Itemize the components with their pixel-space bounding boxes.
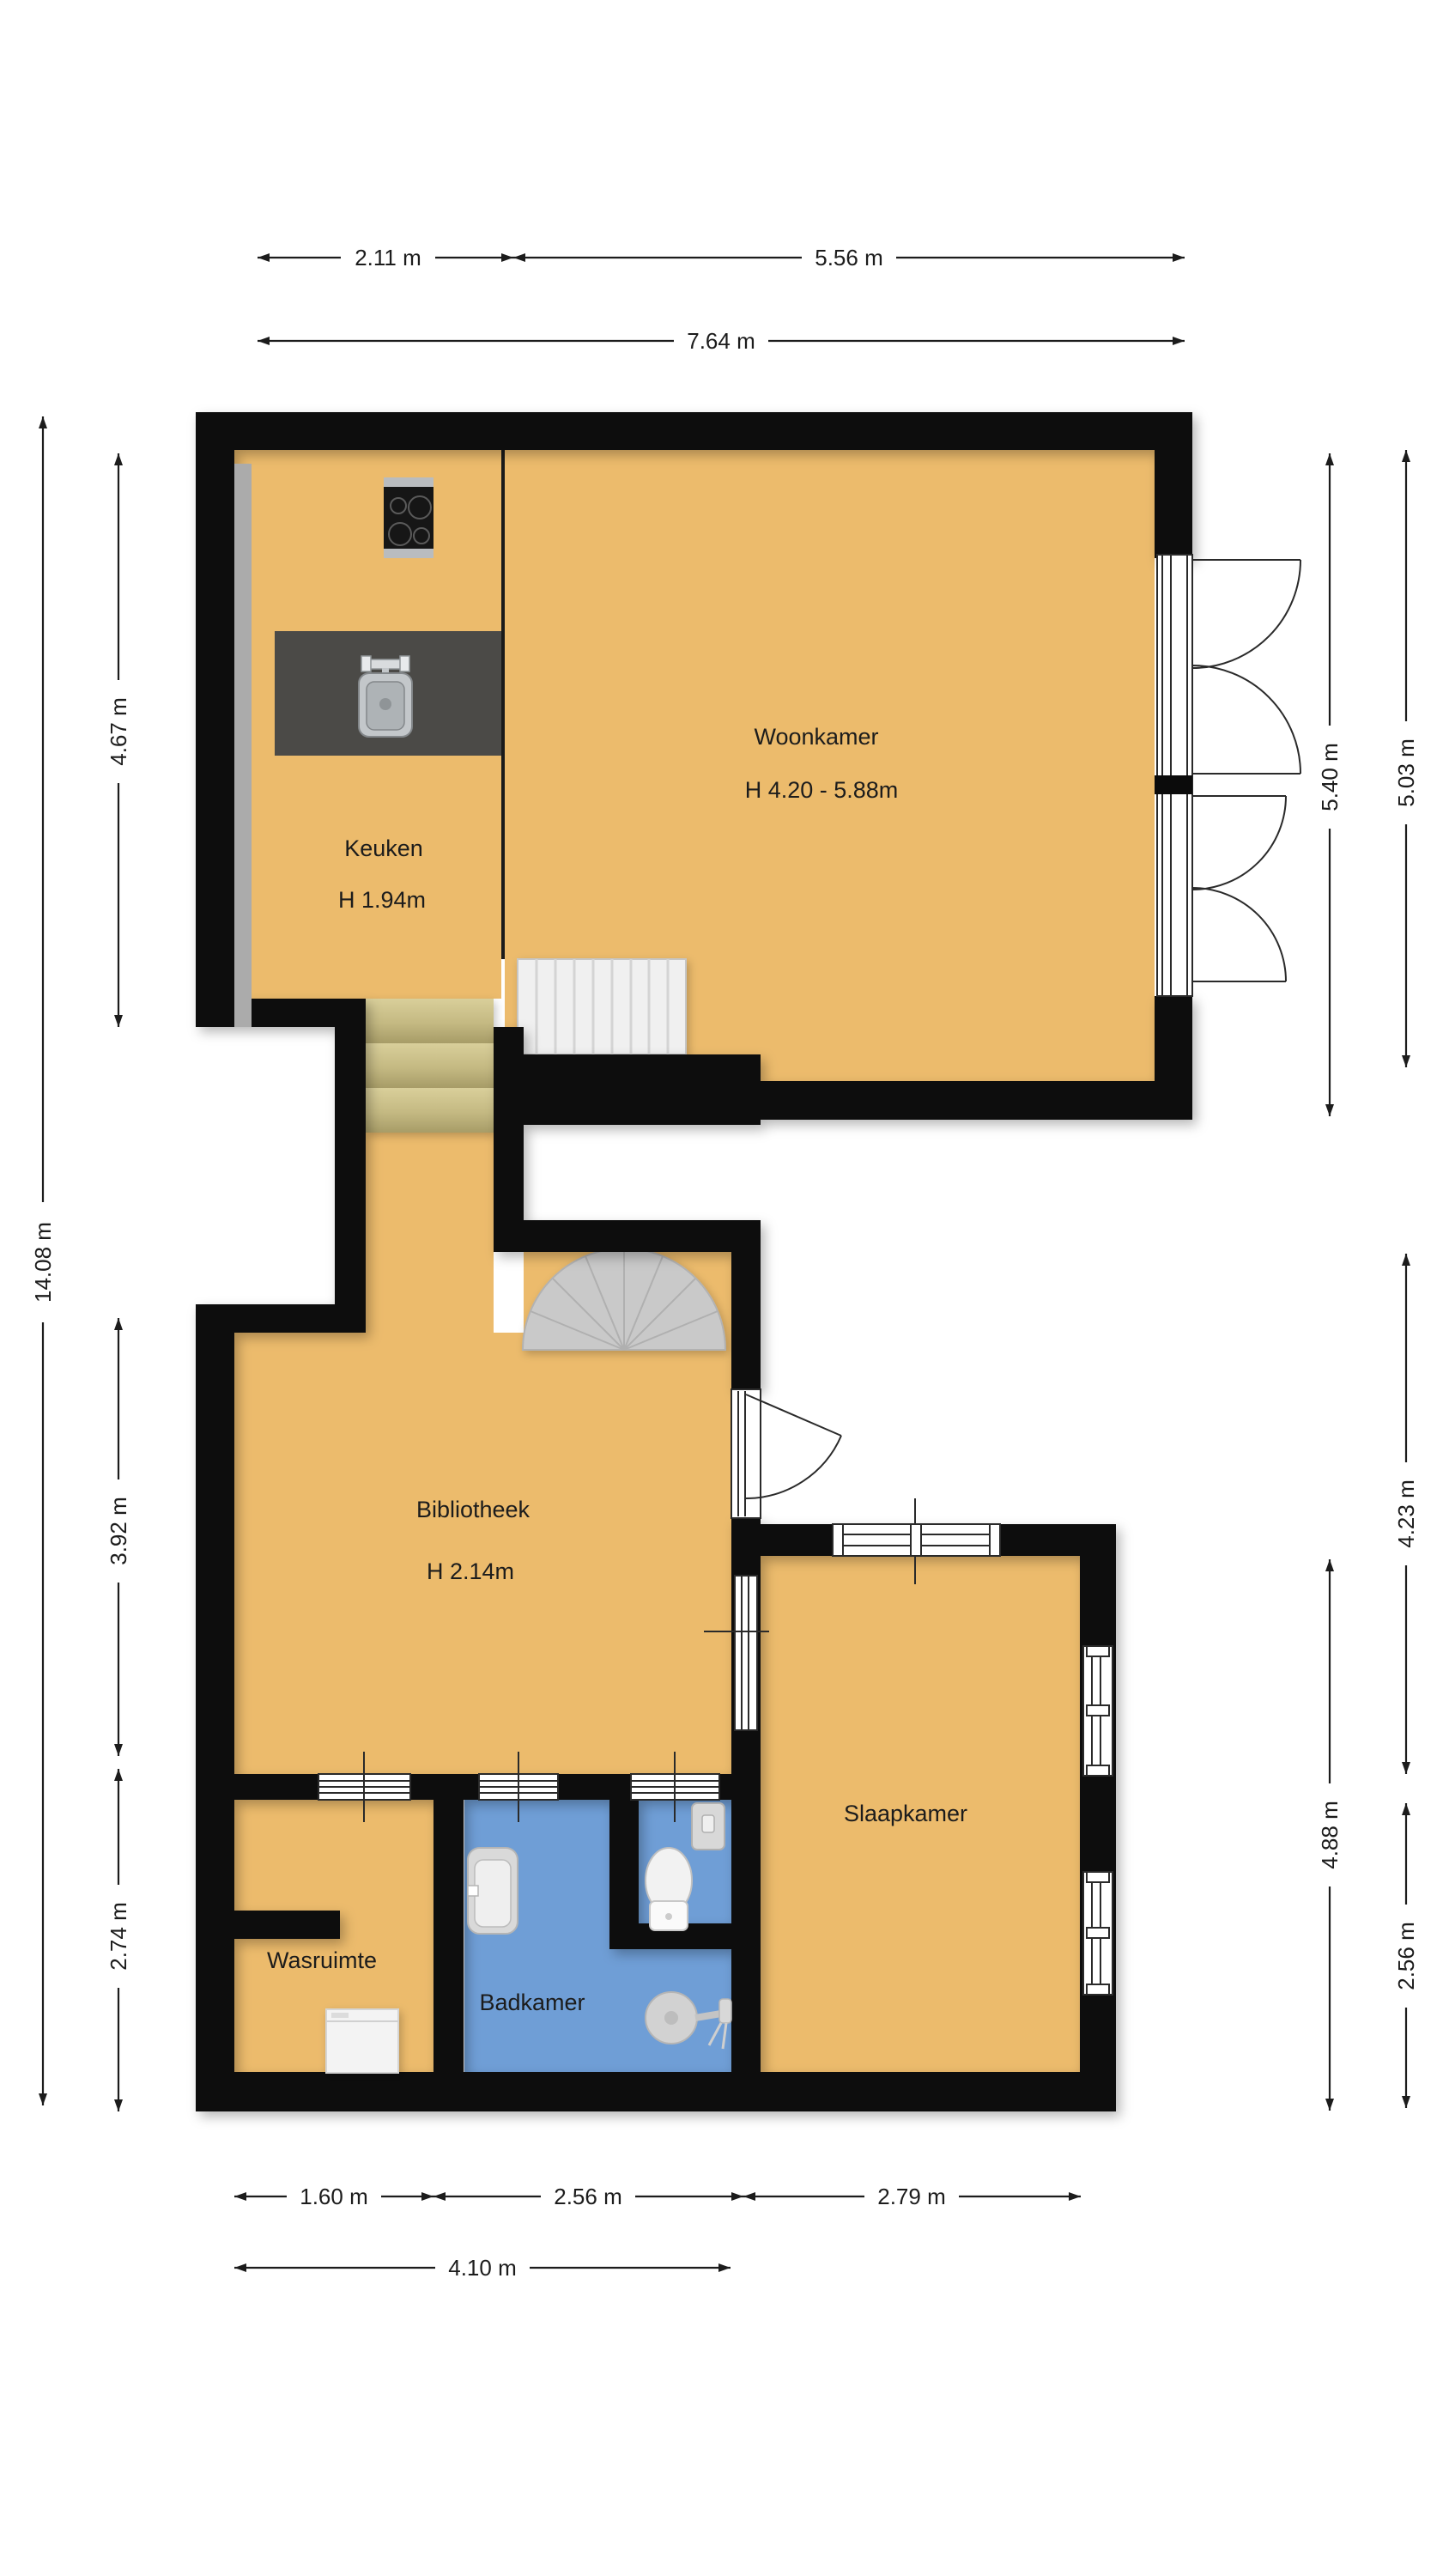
woonkamer-height-label: H 4.20 - 5.88m: [745, 777, 899, 803]
wood-steps: [366, 999, 494, 1133]
straight-stairs: [518, 959, 686, 1054]
dim-total-height: 14.08 m: [30, 1222, 56, 1303]
room-divider-line: [501, 450, 505, 959]
stove-icon: [384, 477, 433, 558]
kitchen-sink-icon: [359, 656, 412, 737]
bibliotheek-floor: [234, 1333, 731, 1774]
dim-woonkamer-height-outer: 5.03 m: [1393, 738, 1419, 807]
wasruimte-label: Wasruimte: [267, 1947, 377, 1973]
washing-machine-icon: [326, 2009, 398, 2073]
door-icon: [731, 1389, 841, 1518]
french-doors-icon: [1155, 555, 1300, 996]
dim-woonkamer-width: 5.56 m: [815, 245, 883, 270]
dim-slaapkamer-height: 4.88 m: [1317, 1801, 1343, 1869]
dim-left-total-width: 4.10 m: [448, 2255, 517, 2281]
dim-wasruimte-width: 1.60 m: [300, 2184, 368, 2209]
badkamer-label: Badkamer: [479, 1990, 585, 2015]
keuken-label: Keuken: [344, 835, 423, 861]
keuken-height-label: H 1.94m: [338, 887, 426, 913]
dim-bibliotheek-right-height: 4.23 m: [1393, 1479, 1419, 1548]
dim-badkamer-width: 2.56 m: [554, 2184, 622, 2209]
dim-keuken-width: 2.11 m: [355, 245, 421, 270]
bibliotheek-height-label: H 2.14m: [427, 1558, 514, 1584]
wall-lining-strip: [234, 464, 252, 1027]
washbasin-icon: [468, 1848, 518, 1934]
dim-slaapkamer-width: 2.79 m: [877, 2184, 946, 2209]
dim-wasruimte-height: 2.74 m: [106, 1902, 131, 1971]
dim-bibliotheek-height: 3.92 m: [106, 1497, 131, 1565]
floor-plan-drawing: Woonkamer H 4.20 - 5.88m Keuken H 1.94m …: [0, 0, 1449, 2576]
dim-total-width: 7.64 m: [687, 328, 755, 354]
dim-woonkamer-height-inner: 5.40 m: [1317, 743, 1343, 811]
slaapkamer-label: Slaapkamer: [844, 1801, 967, 1826]
dim-keuken-height: 4.67 m: [106, 697, 131, 766]
woonkamer-label: Woonkamer: [754, 724, 878, 750]
floor-plan-canvas: Woonkamer H 4.20 - 5.88m Keuken H 1.94m …: [0, 0, 1449, 2576]
dim-badkamer-right-height: 2.56 m: [1393, 1922, 1419, 1990]
bibliotheek-label: Bibliotheek: [416, 1497, 530, 1522]
